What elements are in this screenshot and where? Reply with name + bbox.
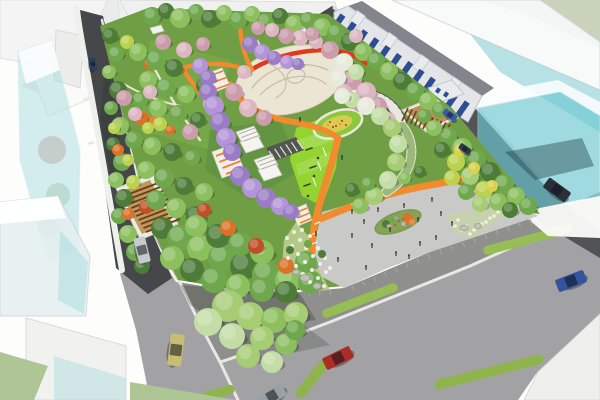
tree-canopies (134, 93, 143, 102)
tree-canopies (166, 126, 172, 132)
tree-canopies (362, 178, 370, 186)
tree-canopies (127, 132, 137, 142)
flowerbed-red-flowers (341, 120, 343, 122)
tree-canopies (428, 121, 437, 130)
white-flowers (310, 268, 314, 272)
tree-canopies (162, 248, 175, 261)
pedestrians (403, 203, 405, 205)
pedestrians (337, 257, 339, 259)
tree-canopies (482, 164, 493, 175)
pedestrians (417, 217, 419, 219)
tree-canopies (487, 181, 494, 188)
tree-canopies (415, 167, 422, 174)
tree-canopies (350, 65, 359, 74)
tree-canopies (151, 100, 161, 110)
flowerbed-orange-flowers (339, 123, 341, 125)
tree-canopies (177, 178, 187, 188)
tree-canopies (382, 63, 392, 73)
tree-canopies (287, 322, 298, 333)
tree-canopies (113, 209, 122, 218)
tree-canopies (113, 145, 120, 152)
tree-canopies (400, 173, 407, 180)
tree-canopies (218, 6, 227, 15)
pedestrians (389, 227, 391, 229)
tree-canopies (144, 86, 152, 94)
tree-canopies (179, 86, 189, 96)
tree-canopies (244, 180, 255, 191)
tree-canopies (287, 16, 297, 26)
garden-shrub (286, 246, 294, 254)
tree-canopies (332, 71, 341, 80)
tree-canopies (264, 309, 278, 323)
boulder (475, 224, 482, 229)
tree-canopies (286, 304, 299, 317)
tree-canopies (158, 80, 169, 91)
tree-canopies (306, 28, 314, 36)
tree-canopies (504, 203, 513, 212)
pedestrians (419, 241, 421, 243)
tree-canopies (238, 66, 246, 74)
tree-canopies (118, 91, 127, 100)
tree-canopies (129, 108, 137, 116)
tree-canopies (408, 83, 418, 93)
boulder (300, 275, 310, 282)
tree-canopies (145, 138, 155, 148)
tree-canopies (252, 328, 265, 341)
pedestrians (435, 235, 437, 237)
tree-canopies (373, 108, 383, 118)
flowerbed-red-flowers (335, 125, 337, 127)
tree-canopies (418, 110, 426, 118)
pedestrians (377, 207, 379, 209)
white-flowers (285, 236, 289, 240)
pedestrians (431, 197, 433, 199)
tree-canopies (258, 111, 267, 120)
tree-canopies (239, 304, 254, 319)
boulder (293, 270, 300, 275)
white-flowers (300, 228, 304, 232)
park-masterplan-rendering (0, 0, 600, 400)
white-flowers (316, 246, 320, 250)
island-red-flowers (405, 223, 407, 225)
white-flowers-east (468, 232, 472, 236)
island-orange-tree (409, 219, 415, 225)
tree-canopies (211, 246, 226, 261)
flowerbed-orange-flowers (327, 124, 329, 126)
pedestrians (351, 233, 353, 235)
tree-canopies (192, 113, 201, 122)
tree-canopies (198, 204, 206, 212)
plaza-curb-ticks (330, 290, 331, 295)
tree-canopies (212, 114, 223, 125)
white-flowers-east (484, 220, 488, 224)
tree-canopies (233, 254, 248, 269)
white-flowers-east (453, 224, 457, 228)
tree-canopies (273, 198, 283, 208)
tree-canopies (395, 73, 405, 83)
tree-canopies (436, 143, 445, 152)
plaza-curb-ticks (320, 291, 321, 296)
tree-canopies (197, 38, 205, 46)
tree-canopies (350, 30, 358, 38)
tree-canopies (263, 353, 275, 365)
tree-canopies (153, 219, 165, 231)
tree-canopies (258, 190, 269, 201)
tree-canopies (268, 52, 276, 60)
tree-canopies (184, 125, 193, 134)
rendered-scene (0, 0, 600, 400)
tree-canopies (280, 259, 289, 268)
tree-canopies (204, 269, 218, 283)
tree-canopies (225, 144, 235, 154)
tree-canopies (117, 190, 127, 200)
tree-canopies (250, 239, 259, 248)
white-flowers-east (472, 228, 476, 232)
tree-canopies (222, 325, 236, 339)
tree-canopies (477, 182, 487, 192)
white-flowers-east (488, 216, 492, 220)
tree-canopies (285, 205, 294, 214)
pedestrians (351, 209, 353, 211)
tree-canopies (227, 84, 237, 94)
tree-canopies (228, 276, 241, 289)
tree-canopies (302, 13, 311, 22)
white-flowers (311, 254, 315, 258)
tree-canopies (391, 136, 401, 146)
tree-canopies (381, 172, 391, 182)
tree-canopies (104, 29, 113, 38)
fitness-equipment-dots (307, 195, 310, 198)
tree-canopies (346, 184, 354, 192)
white-flowers (298, 238, 302, 242)
tree-canopies (421, 93, 431, 103)
tree-canopies (337, 54, 347, 64)
tree-canopies (206, 98, 217, 109)
tree-canopies (148, 52, 159, 63)
tree-canopies (123, 155, 130, 162)
flowerbed-red-flowers (329, 121, 331, 123)
tree-canopies (256, 45, 265, 54)
tree-canopies (170, 227, 184, 241)
tree-canopies (274, 9, 283, 18)
tree-canopies (323, 42, 333, 52)
tree-canopies (160, 4, 169, 13)
island-red-flowers (394, 224, 396, 226)
tree-canopies (446, 171, 455, 180)
white-flowers (318, 262, 322, 266)
tree-canopies (281, 56, 289, 64)
tree-canopies (252, 280, 265, 293)
tree-canopies (277, 283, 289, 295)
pedestrians (363, 219, 365, 221)
tree-canopies (369, 53, 379, 63)
white-flowers-east (496, 210, 500, 214)
tree-canopies (354, 199, 363, 208)
tree-canopies (460, 185, 469, 194)
pedestrians (299, 117, 301, 119)
tree-canopies (121, 226, 131, 236)
tree-canopies (474, 197, 483, 206)
pedestrians (365, 265, 367, 267)
tree-canopies (154, 118, 162, 126)
tree-canopies (123, 209, 130, 216)
tree-canopies (246, 7, 255, 16)
tree-canopies (434, 103, 443, 112)
tree-canopies (241, 100, 251, 110)
white-flowers (324, 270, 328, 274)
white-flowers (308, 234, 312, 238)
tree-canopies (315, 19, 325, 29)
tree-canopies (469, 163, 476, 170)
tree-canopies (107, 138, 115, 146)
tree-canopies (157, 35, 166, 44)
tree-canopies (244, 37, 253, 46)
tree-canopies (266, 24, 274, 32)
tree-canopies (194, 59, 203, 68)
tree-canopies (197, 184, 207, 194)
tree-canopies (171, 106, 181, 116)
pedestrians (440, 211, 442, 213)
tree-canopies (203, 11, 213, 21)
tree-canopies (178, 43, 187, 52)
tree-canopies (148, 192, 159, 203)
boulder (460, 225, 468, 231)
garden-shrub (318, 250, 326, 258)
white-flowers (296, 252, 300, 256)
tree-canopies (105, 102, 113, 110)
tree-canopies (165, 144, 175, 154)
white-flowers (292, 230, 296, 234)
island-red-flowers (402, 218, 404, 220)
tree-canopies (121, 36, 129, 44)
tree-canopies (293, 59, 300, 66)
tree-canopies (156, 170, 167, 181)
tree-canopies (172, 10, 183, 21)
tree-canopies (329, 25, 339, 35)
tree-canopies (127, 176, 135, 184)
island-red-flowers (398, 220, 400, 222)
tree-canopies (187, 217, 199, 229)
tree-canopies (385, 120, 395, 130)
pedestrians (341, 155, 343, 157)
island-rock (394, 217, 398, 220)
tree-canopies (218, 130, 229, 141)
white-flowers (286, 256, 290, 260)
tree-canopies (182, 260, 195, 273)
tree-canopies (141, 72, 151, 82)
white-flowers (294, 264, 298, 268)
tree-canopies (110, 47, 119, 56)
tree-canopies (103, 66, 111, 74)
tree-canopies (215, 292, 233, 310)
tree-canopies (491, 194, 501, 204)
fitness-equipment-dots (313, 175, 316, 178)
tree-canopies (521, 198, 531, 208)
white-flowers-east (456, 218, 460, 222)
white-flowers (322, 284, 326, 288)
tree-canopies (509, 188, 519, 198)
tree-canopies (336, 89, 345, 98)
tree-canopies (109, 123, 116, 130)
tree-canopies (208, 226, 221, 239)
tree-canopies (167, 60, 177, 70)
boulder (313, 283, 321, 289)
tree-canopies (186, 151, 195, 160)
tree-canopies (201, 84, 211, 94)
tree-canopies (139, 162, 149, 172)
tree-canopies (110, 173, 119, 182)
tree-canopies (145, 8, 155, 18)
pedestrians (451, 221, 453, 223)
tree-canopies (197, 310, 212, 325)
white-flowers (328, 266, 332, 270)
white-flowers (316, 276, 320, 280)
pedestrians (408, 254, 410, 256)
tree-canopies (232, 168, 243, 179)
garden-shrub (304, 240, 312, 248)
pedestrians (395, 251, 397, 253)
tree-canopies (230, 234, 243, 247)
tree-canopies (389, 154, 399, 164)
tree-canopies (356, 44, 366, 54)
pedestrians (371, 243, 373, 245)
tree-canopies (252, 22, 260, 30)
tree-canopies (359, 98, 369, 108)
tree-canopies (111, 82, 121, 92)
tree-canopies (168, 200, 179, 211)
pedestrians (315, 231, 317, 233)
tree-canopies (231, 12, 241, 22)
tree-canopies (131, 44, 141, 54)
flowerbed-red-flowers (345, 124, 347, 126)
tree-canopies (238, 346, 251, 359)
island-rock (387, 224, 392, 228)
white-flowers-east (492, 214, 496, 218)
tree-canopies (255, 262, 270, 277)
tree-canopies (143, 123, 150, 130)
tree-canopies (449, 154, 459, 164)
tree-canopies (222, 221, 231, 230)
tree-canopies (190, 5, 199, 14)
flowerbed-red-flowers (332, 126, 334, 128)
tree-canopies (280, 29, 289, 38)
tree-canopies (190, 237, 204, 251)
tree-canopies (202, 71, 211, 80)
tree-canopies (358, 84, 369, 95)
white-flowers (303, 260, 307, 264)
fitness-equipment-dots (317, 157, 320, 160)
